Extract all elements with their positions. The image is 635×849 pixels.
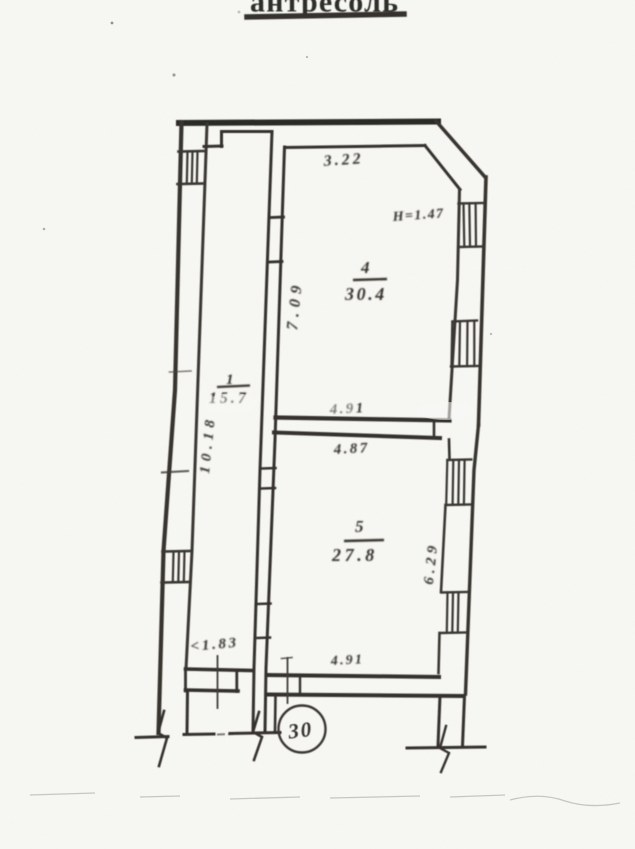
svg-text:4.87: 4.87 xyxy=(332,440,370,458)
svg-text:3.22: 3.22 xyxy=(322,150,364,170)
svg-text:4: 4 xyxy=(360,258,370,277)
svg-text:30.4: 30.4 xyxy=(344,284,387,304)
svg-text:4.91: 4.91 xyxy=(329,652,364,669)
svg-text:30: 30 xyxy=(286,717,315,744)
svg-text:27.8: 27.8 xyxy=(331,545,378,565)
svg-text:5: 5 xyxy=(355,517,364,536)
